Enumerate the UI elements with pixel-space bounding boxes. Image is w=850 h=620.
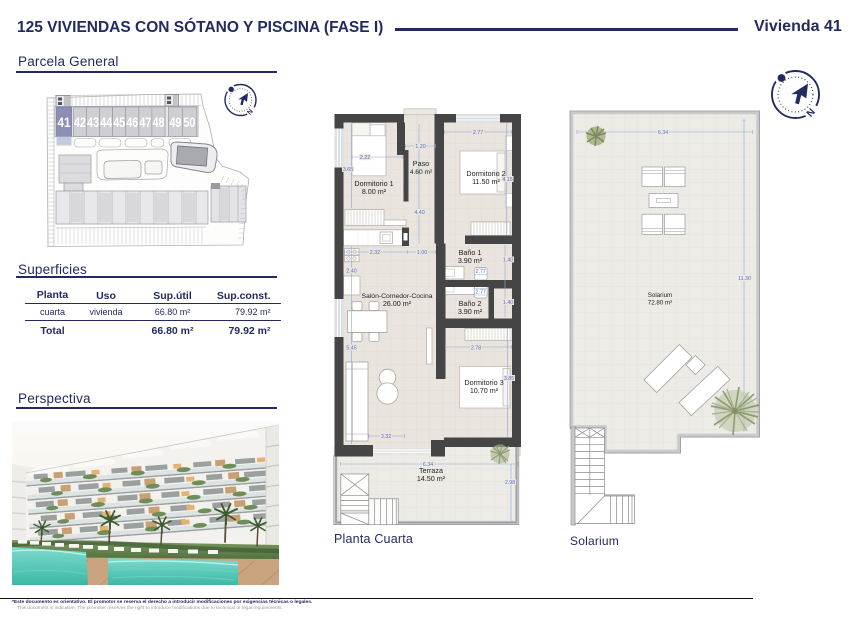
svg-text:1.20: 1.20 [415,144,425,150]
svg-text:43: 43 [87,114,99,130]
svg-text:3.32: 3.32 [381,434,391,440]
svg-text:2.98: 2.98 [505,480,515,486]
svg-text:2.40: 2.40 [346,269,356,275]
svg-text:1.40: 1.40 [503,258,513,264]
svg-text:46: 46 [126,114,138,130]
svg-text:2.77: 2.77 [476,269,486,275]
svg-text:72.80 m²: 72.80 m² [648,300,672,307]
svg-text:14.50 m²: 14.50 m² [417,474,446,483]
svg-text:2.78: 2.78 [471,346,481,352]
svg-text:3.90 m²: 3.90 m² [458,307,483,316]
svg-text:4.60 m²: 4.60 m² [410,169,433,176]
svg-text:41: 41 [58,114,71,130]
svg-text:1.00: 1.00 [417,250,427,256]
svg-text:11.30: 11.30 [738,276,751,282]
svg-text:48: 48 [153,114,165,130]
svg-text:10.70 m²: 10.70 m² [470,386,499,395]
svg-text:2.32: 2.32 [370,250,380,256]
svg-text:3.85: 3.85 [504,376,514,382]
svg-text:3.90 m²: 3.90 m² [458,256,483,265]
svg-text:1.40: 1.40 [503,300,513,306]
svg-text:6.34: 6.34 [658,130,668,136]
svg-text:4.40: 4.40 [414,210,424,216]
svg-text:2.77: 2.77 [476,290,486,296]
svg-text:42: 42 [74,114,86,130]
svg-text:5.45: 5.45 [346,346,356,352]
svg-text:8.00 m²: 8.00 m² [362,187,387,196]
svg-text:Solarium: Solarium [648,292,672,299]
svg-text:3.65: 3.65 [343,167,353,173]
svg-text:47: 47 [139,114,151,130]
svg-text:11.50 m²: 11.50 m² [472,177,500,186]
svg-text:44: 44 [100,114,112,130]
svg-text:45: 45 [113,114,125,130]
svg-text:2.22: 2.22 [360,155,370,161]
svg-text:2.77: 2.77 [473,130,483,136]
svg-text:26.00 m²: 26.00 m² [383,299,412,308]
svg-text:50: 50 [183,114,195,130]
svg-text:49: 49 [169,114,181,130]
svg-text:Paso: Paso [413,159,429,168]
